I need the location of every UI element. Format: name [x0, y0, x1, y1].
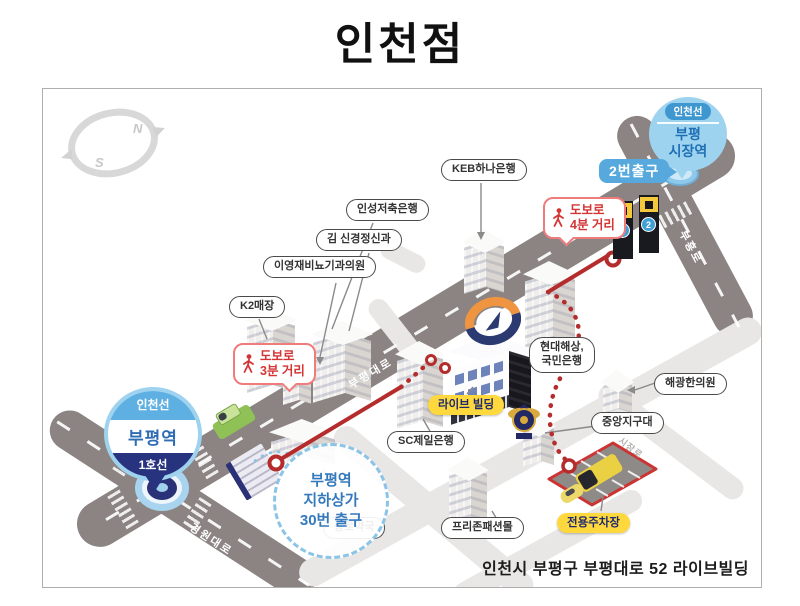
subway-exit-pillar: 2 [639, 195, 659, 253]
building-freezone [449, 469, 487, 517]
exit-2-label: 2번출구 [599, 159, 669, 183]
store-map-page: 인천점 N S [0, 0, 800, 606]
label-leeyoungjae-clinic: 이영재비뇨기과의원 [263, 256, 376, 278]
label-sc-bank: SC제일은행 [387, 431, 465, 453]
building-haegwang [603, 381, 632, 409]
label-jungang-police: 중앙지구대 [591, 412, 664, 434]
store-address: 인천시 부평구 부평대로 52 라이브빌딩 [482, 555, 749, 579]
yellow-car [558, 482, 585, 506]
label-live-building: 라이브 빌딩 [428, 395, 504, 415]
station-name: 부평 시장역 [657, 122, 719, 160]
label-inseong-bank: 인성저축은행 [346, 199, 429, 221]
compass-north-label: N [133, 121, 142, 136]
building-police [523, 425, 554, 461]
bupyeong-station-balloon: 인천선 부평역 1호선 [104, 387, 202, 481]
building-keb [464, 241, 504, 287]
line-badge: 인천선 [108, 391, 198, 420]
walking-icon [241, 354, 256, 374]
map-canvas: N S [42, 88, 762, 588]
label-hyundai-kookmin: 현대해상, 국민은행 [529, 337, 595, 373]
underground-exit-bubble: 부평역 지하상가 30번 출구 [273, 443, 389, 559]
label-kim-clinic: 김 신경정신과 [316, 229, 402, 251]
label-keb-hana-bank: KEB하나은행 [441, 159, 527, 181]
balloon-tail [145, 475, 165, 501]
label-parking: 전용주차장 [557, 513, 630, 533]
compass-south-label: S [95, 155, 104, 170]
subway-sign-icon [640, 197, 658, 212]
line-badge: 인천선 [665, 103, 712, 120]
walking-icon [551, 208, 566, 228]
walk-time-3min: 도보로 3분 거리 [233, 343, 316, 385]
road-name-sijangro: 시장로 [616, 434, 646, 461]
label-k2-store: K2매장 [229, 296, 285, 318]
page-title: 인천점 [0, 8, 800, 72]
compass-icon: N S [61, 99, 165, 187]
line-number-badge: 2 [641, 217, 656, 232]
label-freezone-mall: 프리존패션몰 [441, 517, 524, 539]
label-haegwang-clinic: 해광한의원 [654, 373, 727, 395]
station-name: 부평역 [108, 420, 198, 453]
walk-time-4min: 도보로 4분 거리 [543, 197, 626, 239]
